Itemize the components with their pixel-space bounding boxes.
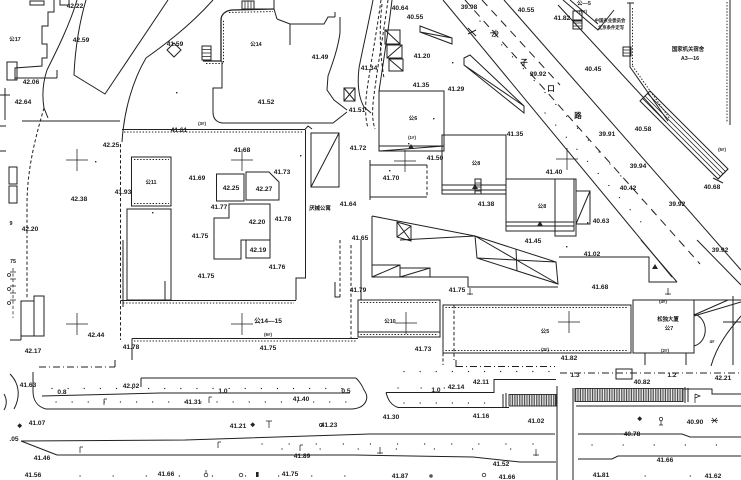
svg-text:41.23: 41.23 bbox=[321, 422, 338, 429]
svg-text:北京条件定写: 北京条件定写 bbox=[598, 24, 625, 31]
svg-text:40.64: 40.64 bbox=[392, 5, 409, 12]
svg-text:41.07: 41.07 bbox=[29, 420, 46, 427]
svg-text:41.52: 41.52 bbox=[493, 461, 510, 468]
svg-text:39.91: 39.91 bbox=[599, 131, 616, 138]
svg-text:(3#): (3#) bbox=[541, 347, 549, 352]
svg-text:41.63: 41.63 bbox=[20, 382, 37, 389]
svg-text:4#: 4# bbox=[710, 339, 715, 344]
svg-text:(2#): (2#) bbox=[661, 348, 669, 353]
svg-text:松独大厦: 松独大厦 bbox=[657, 315, 679, 323]
svg-text:42.21: 42.21 bbox=[715, 375, 732, 382]
svg-text:42.38: 42.38 bbox=[71, 196, 88, 203]
svg-text:41.46: 41.46 bbox=[34, 455, 51, 462]
svg-text:41.87: 41.87 bbox=[392, 473, 409, 480]
svg-text:40.55: 40.55 bbox=[518, 7, 535, 14]
svg-text:41.35: 41.35 bbox=[507, 131, 524, 138]
svg-text:39.94: 39.94 bbox=[630, 163, 647, 170]
svg-text:沙: 沙 bbox=[491, 29, 499, 38]
svg-text:41.59: 41.59 bbox=[167, 41, 184, 48]
svg-text:41.75: 41.75 bbox=[192, 233, 209, 240]
svg-text:0.5: 0.5 bbox=[341, 388, 350, 395]
svg-text:41.66: 41.66 bbox=[657, 457, 674, 464]
svg-text:.05: .05 bbox=[9, 436, 18, 443]
svg-text:40.58: 40.58 bbox=[635, 126, 652, 133]
svg-text:42.25: 42.25 bbox=[223, 185, 240, 192]
svg-text:9: 9 bbox=[10, 221, 13, 227]
svg-text:40.45: 40.45 bbox=[585, 66, 602, 73]
svg-text:41.76: 41.76 bbox=[269, 264, 286, 271]
svg-text:41.02: 41.02 bbox=[528, 418, 545, 425]
svg-text:39.92: 39.92 bbox=[669, 201, 686, 208]
svg-text:(6#): (6#) bbox=[264, 332, 272, 337]
svg-text:41.70: 41.70 bbox=[383, 175, 400, 182]
svg-text:(5#): (5#) bbox=[718, 147, 726, 152]
svg-text:40.90: 40.90 bbox=[687, 419, 704, 426]
svg-text:42.25: 42.25 bbox=[103, 142, 120, 149]
svg-text:41.73: 41.73 bbox=[274, 169, 291, 176]
svg-text:41.16: 41.16 bbox=[473, 413, 490, 420]
svg-text:41.40: 41.40 bbox=[293, 396, 310, 403]
svg-text:41.93: 41.93 bbox=[115, 189, 132, 196]
svg-text:41.02: 41.02 bbox=[584, 251, 601, 258]
svg-text:公17: 公17 bbox=[9, 36, 20, 43]
svg-text:40.78: 40.78 bbox=[624, 431, 641, 438]
svg-text:国家机关宿舍: 国家机关宿舍 bbox=[672, 45, 705, 53]
svg-text:41.89: 41.89 bbox=[294, 453, 311, 460]
svg-text:41.75: 41.75 bbox=[282, 471, 299, 478]
svg-text:A3—16: A3—16 bbox=[681, 56, 699, 62]
svg-text:41.73: 41.73 bbox=[415, 346, 432, 353]
svg-text:(4#): (4#) bbox=[659, 299, 667, 304]
svg-text:41.75: 41.75 bbox=[449, 287, 466, 294]
svg-text:41.49: 41.49 bbox=[312, 54, 329, 61]
svg-text:子: 子 bbox=[520, 58, 528, 67]
svg-text:1.3: 1.3 bbox=[570, 372, 579, 379]
svg-text:路: 路 bbox=[574, 110, 582, 120]
svg-text:42.20: 42.20 bbox=[249, 219, 266, 226]
svg-text:41.75: 41.75 bbox=[260, 345, 277, 352]
svg-text:41.75: 41.75 bbox=[198, 273, 215, 280]
svg-text:41.79: 41.79 bbox=[350, 287, 367, 294]
svg-text:0.8: 0.8 bbox=[57, 389, 66, 396]
svg-text:42.20: 42.20 bbox=[22, 226, 39, 233]
svg-text:42.19: 42.19 bbox=[250, 247, 267, 254]
svg-text:41.78: 41.78 bbox=[123, 344, 140, 351]
svg-text:41.69: 41.69 bbox=[189, 175, 206, 182]
svg-text:42.44: 42.44 bbox=[88, 332, 105, 339]
svg-text:1.0: 1.0 bbox=[431, 387, 440, 394]
svg-text:中国农业委员会: 中国农业委员会 bbox=[595, 17, 626, 24]
svg-text:41.40: 41.40 bbox=[546, 169, 563, 176]
svg-text:42.17: 42.17 bbox=[25, 348, 42, 355]
svg-text:41.82: 41.82 bbox=[561, 355, 578, 362]
svg-text:42.14: 42.14 bbox=[448, 384, 465, 391]
svg-text:39.92: 39.92 bbox=[712, 247, 729, 254]
svg-text:41.30: 41.30 bbox=[383, 414, 400, 421]
svg-text:41.29: 41.29 bbox=[448, 86, 465, 93]
svg-text:42.06: 42.06 bbox=[23, 79, 40, 86]
svg-text:41.78: 41.78 bbox=[275, 216, 292, 223]
svg-text:40.82: 40.82 bbox=[634, 379, 651, 386]
svg-text:39.92: 39.92 bbox=[530, 71, 547, 78]
svg-text:公10: 公10 bbox=[384, 318, 395, 325]
svg-text:40.42: 40.42 bbox=[620, 185, 637, 192]
svg-text:公14—15: 公14—15 bbox=[254, 317, 282, 325]
svg-text:75: 75 bbox=[10, 259, 16, 265]
svg-text:41.77: 41.77 bbox=[211, 204, 228, 211]
svg-text:41.31: 41.31 bbox=[185, 399, 202, 406]
svg-text:1.0: 1.0 bbox=[218, 388, 227, 395]
svg-text:公8: 公8 bbox=[538, 203, 546, 210]
svg-text:1.2: 1.2 bbox=[667, 372, 676, 379]
svg-text:41.56: 41.56 bbox=[25, 472, 42, 479]
svg-text:41.20: 41.20 bbox=[414, 53, 431, 60]
svg-text:41.61: 41.61 bbox=[171, 127, 188, 134]
svg-text:41.72: 41.72 bbox=[350, 145, 367, 152]
svg-text:40.55: 40.55 bbox=[407, 14, 424, 21]
svg-text:41.81: 41.81 bbox=[593, 472, 610, 479]
svg-text:39.98: 39.98 bbox=[461, 4, 478, 11]
svg-text:41.65: 41.65 bbox=[352, 235, 369, 242]
svg-text:40.63: 40.63 bbox=[593, 218, 610, 225]
svg-text:41.62: 41.62 bbox=[705, 473, 722, 480]
svg-text:42.11: 42.11 bbox=[473, 379, 489, 386]
svg-text:41.64: 41.64 bbox=[340, 201, 357, 208]
svg-text:公14: 公14 bbox=[250, 41, 261, 48]
svg-text:42.27: 42.27 bbox=[256, 186, 273, 193]
svg-text:41.34: 41.34 bbox=[361, 65, 378, 72]
svg-text:公6: 公6 bbox=[409, 115, 417, 122]
svg-text:41.45: 41.45 bbox=[525, 238, 542, 245]
svg-text:口: 口 bbox=[547, 84, 555, 93]
svg-text:42.02: 42.02 bbox=[123, 383, 140, 390]
svg-text:41.38: 41.38 bbox=[478, 201, 495, 208]
svg-text:公5: 公5 bbox=[541, 328, 549, 335]
svg-text:41.50: 41.50 bbox=[427, 155, 444, 162]
svg-text:41.35: 41.35 bbox=[413, 82, 430, 89]
svg-text:(3#): (3#) bbox=[198, 121, 206, 126]
svg-text:41.52: 41.52 bbox=[258, 99, 275, 106]
svg-text:公—5: 公—5 bbox=[577, 0, 591, 7]
svg-text:41.66: 41.66 bbox=[499, 474, 516, 480]
svg-text:42.22: 42.22 bbox=[67, 3, 84, 10]
svg-text:公11: 公11 bbox=[145, 179, 156, 186]
svg-text:公7: 公7 bbox=[665, 325, 673, 332]
svg-text:42.64: 42.64 bbox=[15, 99, 32, 106]
svg-text:41.21: 41.21 bbox=[230, 423, 247, 430]
svg-text:41.68: 41.68 bbox=[592, 284, 609, 291]
svg-text:厌械公寓: 厌械公寓 bbox=[309, 204, 331, 212]
svg-text:公8: 公8 bbox=[472, 160, 480, 167]
svg-text:40.68: 40.68 bbox=[704, 184, 721, 191]
svg-text:(1#): (1#) bbox=[408, 135, 416, 140]
svg-text:42.59: 42.59 bbox=[73, 37, 90, 44]
svg-text:41.66: 41.66 bbox=[158, 471, 175, 478]
svg-text:41.51: 41.51 bbox=[349, 107, 366, 114]
